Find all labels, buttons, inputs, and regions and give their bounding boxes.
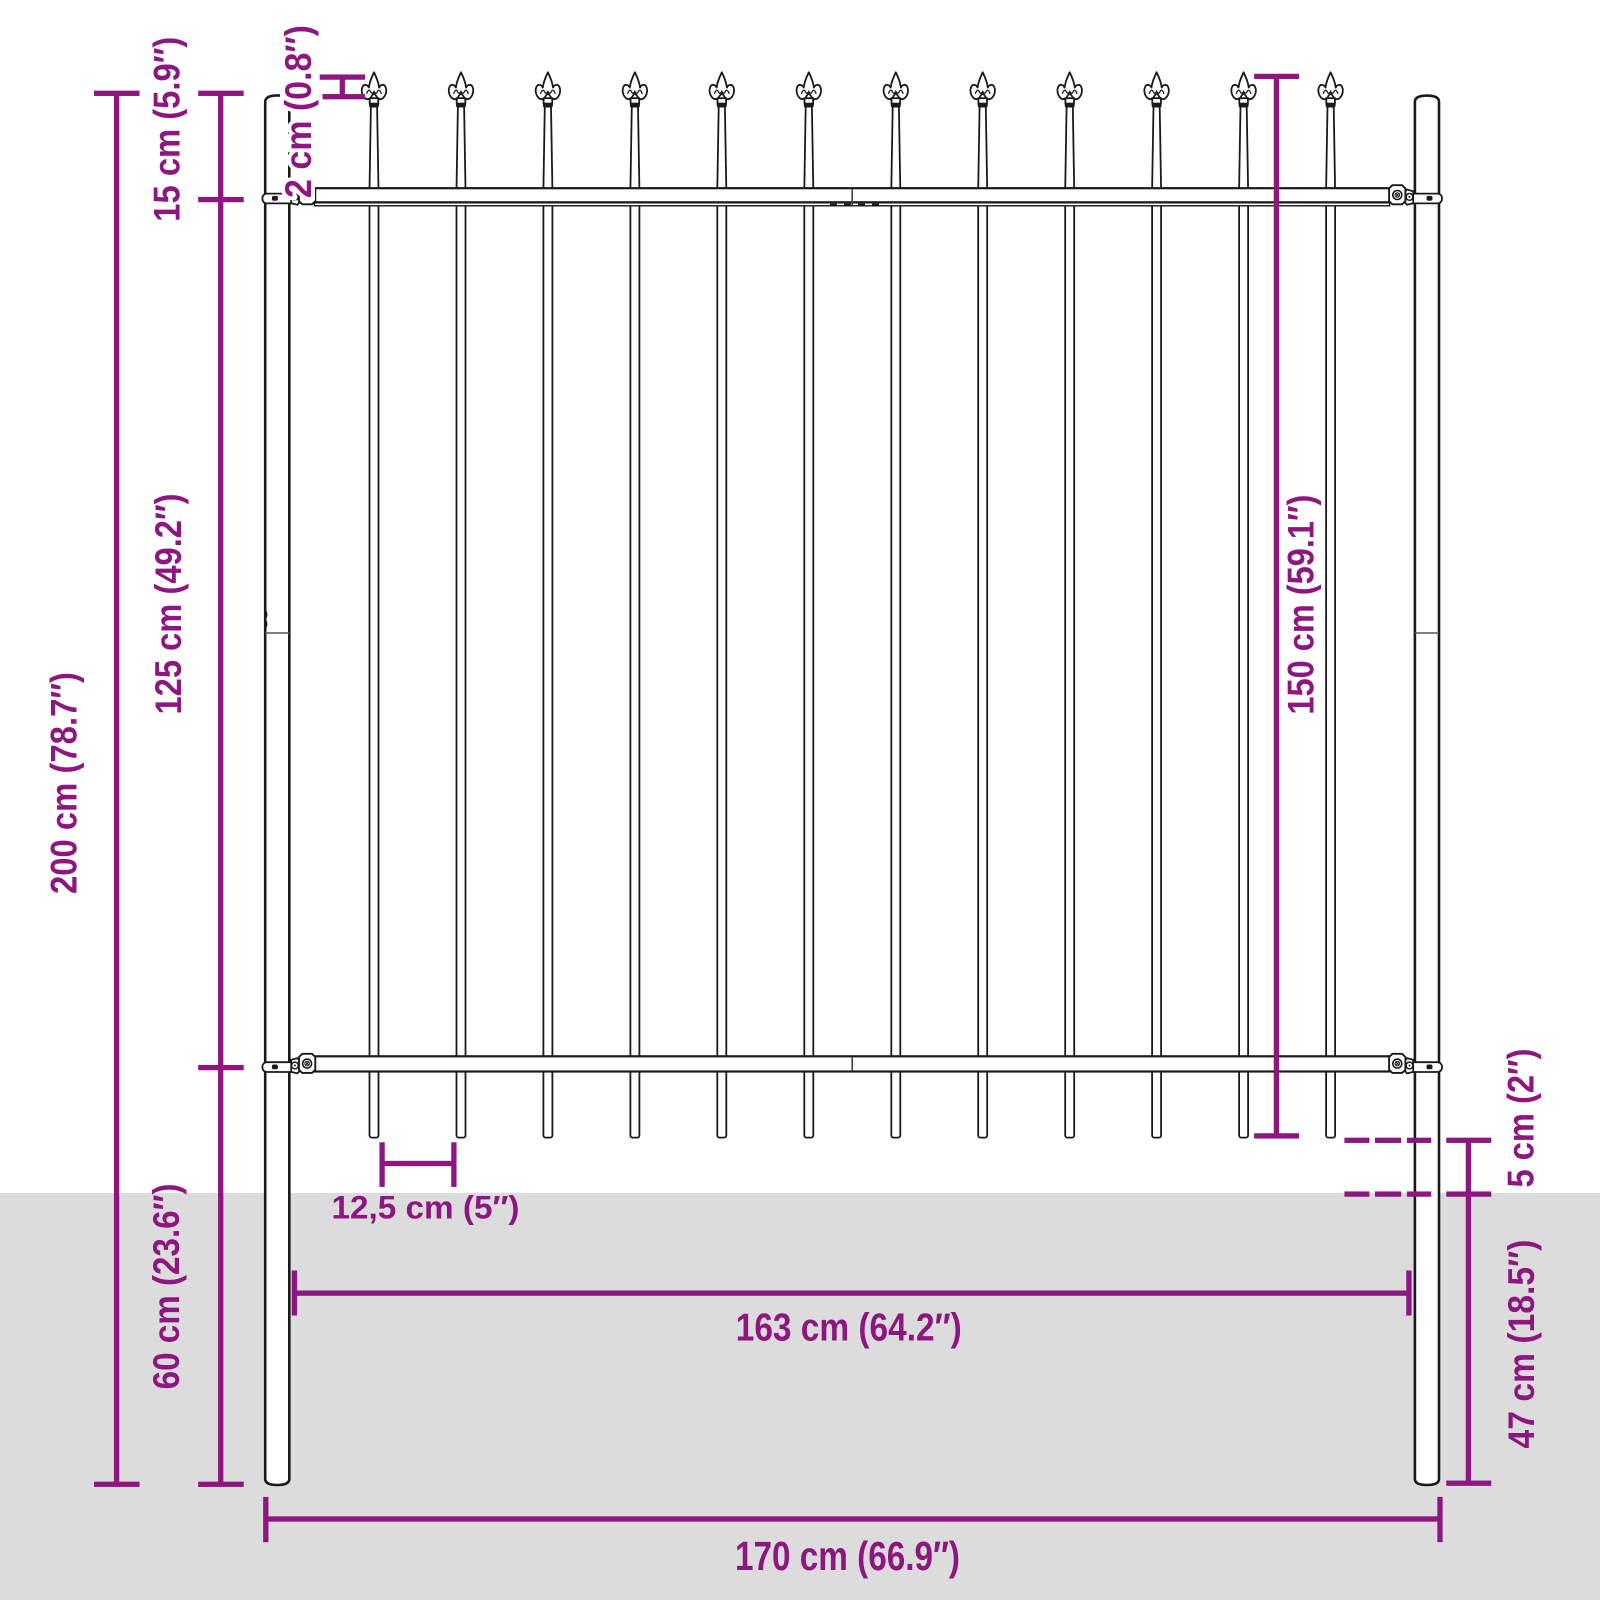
svg-text:2 cm (0.8″): 2 cm (0.8″) xyxy=(277,25,319,198)
svg-text:5 cm (2″): 5 cm (2″) xyxy=(1500,1049,1542,1188)
svg-text:125 cm (49.2″): 125 cm (49.2″) xyxy=(147,494,189,715)
svg-text:200 cm (78.7″): 200 cm (78.7″) xyxy=(43,672,85,894)
svg-text:150 cm (59.1″): 150 cm (59.1″) xyxy=(1280,495,1322,715)
svg-text:170 cm (66.9″): 170 cm (66.9″) xyxy=(735,1533,960,1579)
svg-text:163 cm (64.2″): 163 cm (64.2″) xyxy=(736,1306,962,1349)
svg-text:60 cm (23.6″): 60 cm (23.6″) xyxy=(145,1183,187,1389)
svg-text:12,5 cm (5″): 12,5 cm (5″) xyxy=(332,1190,520,1226)
svg-text:15 cm (5.9″): 15 cm (5.9″) xyxy=(146,37,188,222)
svg-text:47 cm (18.5″): 47 cm (18.5″) xyxy=(1500,1240,1542,1449)
